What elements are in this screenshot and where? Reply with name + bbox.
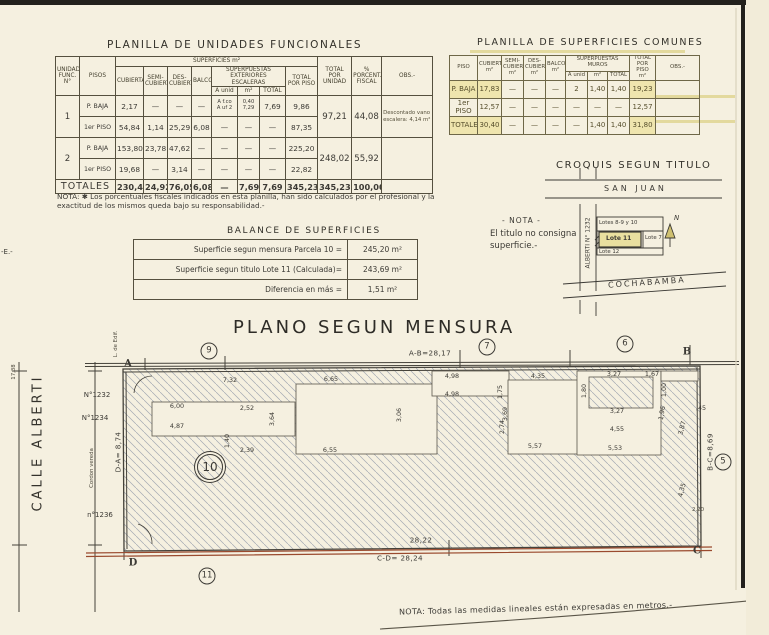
col-header: OBS.- bbox=[656, 56, 700, 81]
col-header: DES- CUBIERTA m² bbox=[524, 56, 546, 81]
table-cell: 225,20 bbox=[286, 138, 318, 159]
col-header: BALCON m² bbox=[546, 56, 566, 81]
table-cell: 243,69 m² bbox=[348, 260, 418, 280]
table-cell: — bbox=[212, 159, 238, 180]
table-cell: 12,57 bbox=[630, 98, 656, 116]
table-cell: 17,83 bbox=[478, 80, 502, 98]
table-cell: 87,35 bbox=[286, 117, 318, 138]
scan-top-border bbox=[0, 0, 769, 5]
col-header: A unid bbox=[212, 87, 238, 96]
table-cell: 0,40 7,29 bbox=[238, 96, 260, 117]
table-cell: 19,68 bbox=[116, 159, 144, 180]
col-header: PISO bbox=[450, 56, 478, 81]
table-cell: — bbox=[546, 116, 566, 134]
table-cell: 1,40 bbox=[588, 80, 608, 98]
table-cell: 153,80 bbox=[116, 138, 144, 159]
table-cell: Descontado vano escalera: 4,14 m² bbox=[382, 96, 433, 138]
table-cell: — bbox=[238, 159, 260, 180]
table-cell bbox=[656, 98, 700, 116]
table-cell: — bbox=[502, 98, 524, 116]
unidades-note: NOTA: ✱ Los porcentuales fiscales indica… bbox=[57, 192, 443, 211]
table-cell: — bbox=[524, 98, 546, 116]
col-header: UNIDAD FUNC. N° bbox=[56, 57, 80, 96]
col-header: BALCON bbox=[192, 67, 212, 96]
col-header: TOTAL bbox=[608, 71, 630, 80]
unidades-funcionales-table: UNIDAD FUNC. N° PISOS SUPERFICIES m² TOT… bbox=[55, 56, 433, 194]
table-cell: 248,02 bbox=[318, 138, 352, 180]
col-header: TOTAL POR UNIDAD bbox=[318, 57, 352, 96]
table-cell: — bbox=[212, 117, 238, 138]
unidades-title: PLANILLA DE UNIDADES FUNCIONALES bbox=[107, 39, 362, 51]
yellow-title-underline bbox=[470, 50, 685, 53]
table-cell: 1er PISO bbox=[450, 98, 478, 116]
scanned-survey-document: -E.- PLANILLA DE UNIDADES FUNCIONALES UN… bbox=[0, 0, 769, 635]
table-cell: — bbox=[546, 80, 566, 98]
table-cell: 1,40 bbox=[588, 116, 608, 134]
croquis-title: CROQUIS SEGUN TITULO bbox=[556, 160, 711, 171]
table-cell: 23,78 bbox=[144, 138, 168, 159]
table-cell: — bbox=[608, 98, 630, 116]
table-cell: P. BAJA bbox=[80, 138, 116, 159]
table-cell: 12,57 bbox=[478, 98, 502, 116]
table-cell: TOTALES bbox=[450, 116, 478, 134]
table-cell: — bbox=[238, 138, 260, 159]
balance-superficies-table: Superficie segun mensura Parcela 10 =245… bbox=[133, 239, 418, 300]
table-cell bbox=[656, 116, 700, 134]
col-header: TOTAL POR PISO bbox=[286, 67, 318, 96]
table-cell bbox=[382, 138, 433, 180]
scan-page-edge bbox=[746, 0, 769, 635]
scan-right-border bbox=[741, 0, 745, 588]
street-label-san-juan: SAN JUAN bbox=[604, 184, 667, 193]
table-cell: — bbox=[588, 98, 608, 116]
table-cell: — bbox=[192, 96, 212, 117]
table-cell: 25,29 bbox=[168, 117, 192, 138]
col-header: DES- CUBIERTA bbox=[168, 67, 192, 96]
lot-label-top: Lotes 8-9 y 10 bbox=[599, 220, 637, 226]
table-cell: 9,86 bbox=[286, 96, 318, 117]
table-cell: 2,17 bbox=[116, 96, 144, 117]
table-cell: — bbox=[260, 117, 286, 138]
table-cell: — bbox=[546, 98, 566, 116]
col-header: SEMI- CUBIERTA bbox=[144, 67, 168, 96]
table-cell: — bbox=[260, 138, 286, 159]
margin-annotation: -E.- bbox=[1, 248, 13, 256]
balance-title: BALANCE DE SUPERFICIES bbox=[227, 226, 381, 236]
croquis-note-line2: El titulo no consigna bbox=[490, 229, 576, 239]
table-cell: 97,21 bbox=[318, 96, 352, 138]
col-header: TOTAL POR PISO m² bbox=[630, 56, 656, 81]
table-cell: — bbox=[192, 138, 212, 159]
croquis-note-line1: - NOTA - bbox=[502, 216, 541, 225]
col-header: SUPERFICIES m² bbox=[116, 57, 318, 67]
table-cell: — bbox=[502, 116, 524, 134]
col-header: A unid bbox=[566, 71, 588, 80]
table-cell: 2 bbox=[56, 138, 80, 180]
north-arrow-icon: N bbox=[674, 214, 679, 222]
table-cell: 1,14 bbox=[144, 117, 168, 138]
street-label-alberti: ALBERTI N° 1232 bbox=[585, 217, 592, 268]
table-cell: Superficie segun titulo Lote 11 (Calcula… bbox=[134, 260, 348, 280]
table-cell: 2 bbox=[566, 80, 588, 98]
col-header: CUBIERTA bbox=[116, 67, 144, 96]
table-cell: — bbox=[524, 116, 546, 134]
table-cell: A f.co A uf 2 bbox=[212, 96, 238, 117]
table-cell: — bbox=[238, 117, 260, 138]
table-cell: 19,23 bbox=[630, 80, 656, 98]
col-header: m² bbox=[238, 87, 260, 96]
table-cell: 30,40 bbox=[478, 116, 502, 134]
table-cell: — bbox=[260, 159, 286, 180]
col-header: % PORCENT. FISCAL bbox=[352, 57, 382, 96]
table-cell: Superficie segun mensura Parcela 10 = bbox=[134, 240, 348, 260]
col-header: SUPERPUESTAS MUROS bbox=[566, 56, 630, 72]
table-cell: 6,08 bbox=[192, 117, 212, 138]
table-cell: 55,92 bbox=[352, 138, 382, 180]
table-cell: — bbox=[168, 96, 192, 117]
table-cell: — bbox=[524, 80, 546, 98]
col-header: SEMI- CUBIERTA m² bbox=[502, 56, 524, 81]
table-cell: 1er PISO bbox=[80, 159, 116, 180]
lot-label-main: Lote 11 bbox=[606, 235, 631, 242]
table-cell: — bbox=[192, 159, 212, 180]
table-cell: 7,69 bbox=[260, 96, 286, 117]
table-cell: 1,40 bbox=[608, 80, 630, 98]
plano-title: PLANO SEGUN MENSURA bbox=[233, 317, 515, 338]
table-cell: 31,80 bbox=[630, 116, 656, 134]
lot-label-right: Lote 7 bbox=[645, 235, 662, 241]
table-cell: 1,51 m² bbox=[348, 280, 418, 300]
table-cell: P. BAJA bbox=[450, 80, 478, 98]
table-cell: — bbox=[566, 98, 588, 116]
table-cell: 1 bbox=[56, 96, 80, 138]
col-header: CUBIERTA m² bbox=[478, 56, 502, 81]
table-cell: 22,82 bbox=[286, 159, 318, 180]
table-cell: — bbox=[502, 80, 524, 98]
table-cell: Diferencia en más = bbox=[134, 280, 348, 300]
col-header: SUPERPUESTAS EXTERIORES ESCALERAS bbox=[212, 67, 286, 87]
table-cell: — bbox=[566, 116, 588, 134]
col-header: TOTAL bbox=[260, 87, 286, 96]
col-header: m² bbox=[588, 71, 608, 80]
croquis-note-line3: superficie.- bbox=[490, 241, 537, 251]
table-cell: 1er PISO bbox=[80, 117, 116, 138]
table-cell: 245,20 m² bbox=[348, 240, 418, 260]
table-cell: 3,14 bbox=[168, 159, 192, 180]
col-header: OBS.- bbox=[382, 57, 433, 96]
table-cell: — bbox=[144, 159, 168, 180]
table-cell: 1,40 bbox=[608, 116, 630, 134]
table-cell: 47,62 bbox=[168, 138, 192, 159]
lot-label-bottom: Lote 12 bbox=[599, 249, 619, 255]
col-header: PISOS bbox=[80, 57, 116, 96]
superficies-comunes-table: PISO CUBIERTA m² SEMI- CUBIERTA m² DES- … bbox=[449, 55, 700, 135]
table-cell: 44,08 bbox=[352, 96, 382, 138]
table-cell: P. BAJA bbox=[80, 96, 116, 117]
table-cell bbox=[656, 80, 700, 98]
table-cell: — bbox=[144, 96, 168, 117]
comunes-title: PLANILLA DE SUPERFICIES COMUNES bbox=[477, 37, 703, 48]
table-cell: — bbox=[212, 138, 238, 159]
table-cell: 54,84 bbox=[116, 117, 144, 138]
